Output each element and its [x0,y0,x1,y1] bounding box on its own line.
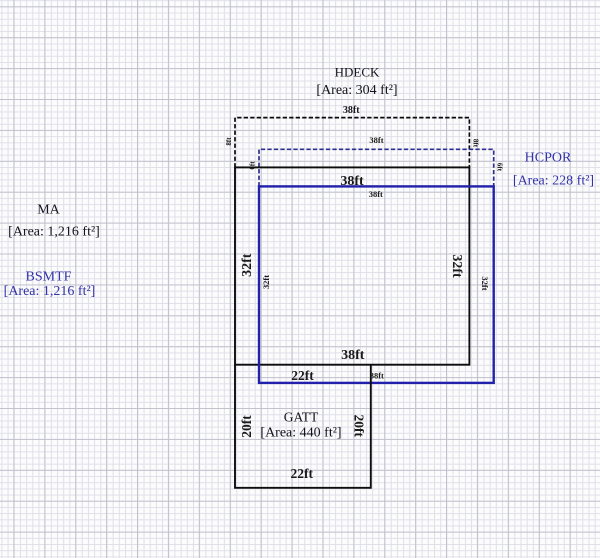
svg-text:32ft: 32ft [449,254,464,278]
svg-text:38ft: 38ft [369,135,383,145]
svg-text:[Area: 1,216 ft²]: [Area: 1,216 ft²] [8,225,100,240]
svg-text:22ft: 22ft [291,368,314,383]
svg-text:32ft: 32ft [480,276,490,290]
svg-text:6ft: 6ft [496,163,504,172]
svg-text:20ft: 20ft [239,415,254,438]
svg-text:8ft: 8ft [225,137,233,146]
svg-text:32ft: 32ft [240,253,255,277]
svg-text:22ft: 22ft [291,466,314,481]
svg-text:GATT: GATT [284,410,319,425]
svg-text:[Area: 440 ft²]: [Area: 440 ft²] [260,426,341,441]
svg-text:8ft: 8ft [471,139,479,148]
svg-text:38ft: 38ft [343,105,360,116]
svg-text:[Area: 304 ft²]: [Area: 304 ft²] [316,83,397,98]
svg-text:38ft: 38ft [340,174,364,189]
svg-text:[Area: 228 ft²]: [Area: 228 ft²] [513,174,594,189]
svg-text:HDECK: HDECK [335,65,380,80]
svg-text:BSMTF: BSMTF [26,270,72,285]
svg-text:6ft: 6ft [248,161,256,170]
svg-text:HCPOR: HCPOR [525,151,572,166]
svg-text:[Area: 1,216 ft²]: [Area: 1,216 ft²] [4,284,96,299]
svg-text:20ft: 20ft [352,415,367,438]
svg-text:32ft: 32ft [261,275,271,289]
svg-text:38ft: 38ft [341,348,365,363]
svg-text:MA: MA [37,203,60,218]
svg-text:38ft: 38ft [369,189,383,199]
svg-text:38ft: 38ft [370,371,384,381]
